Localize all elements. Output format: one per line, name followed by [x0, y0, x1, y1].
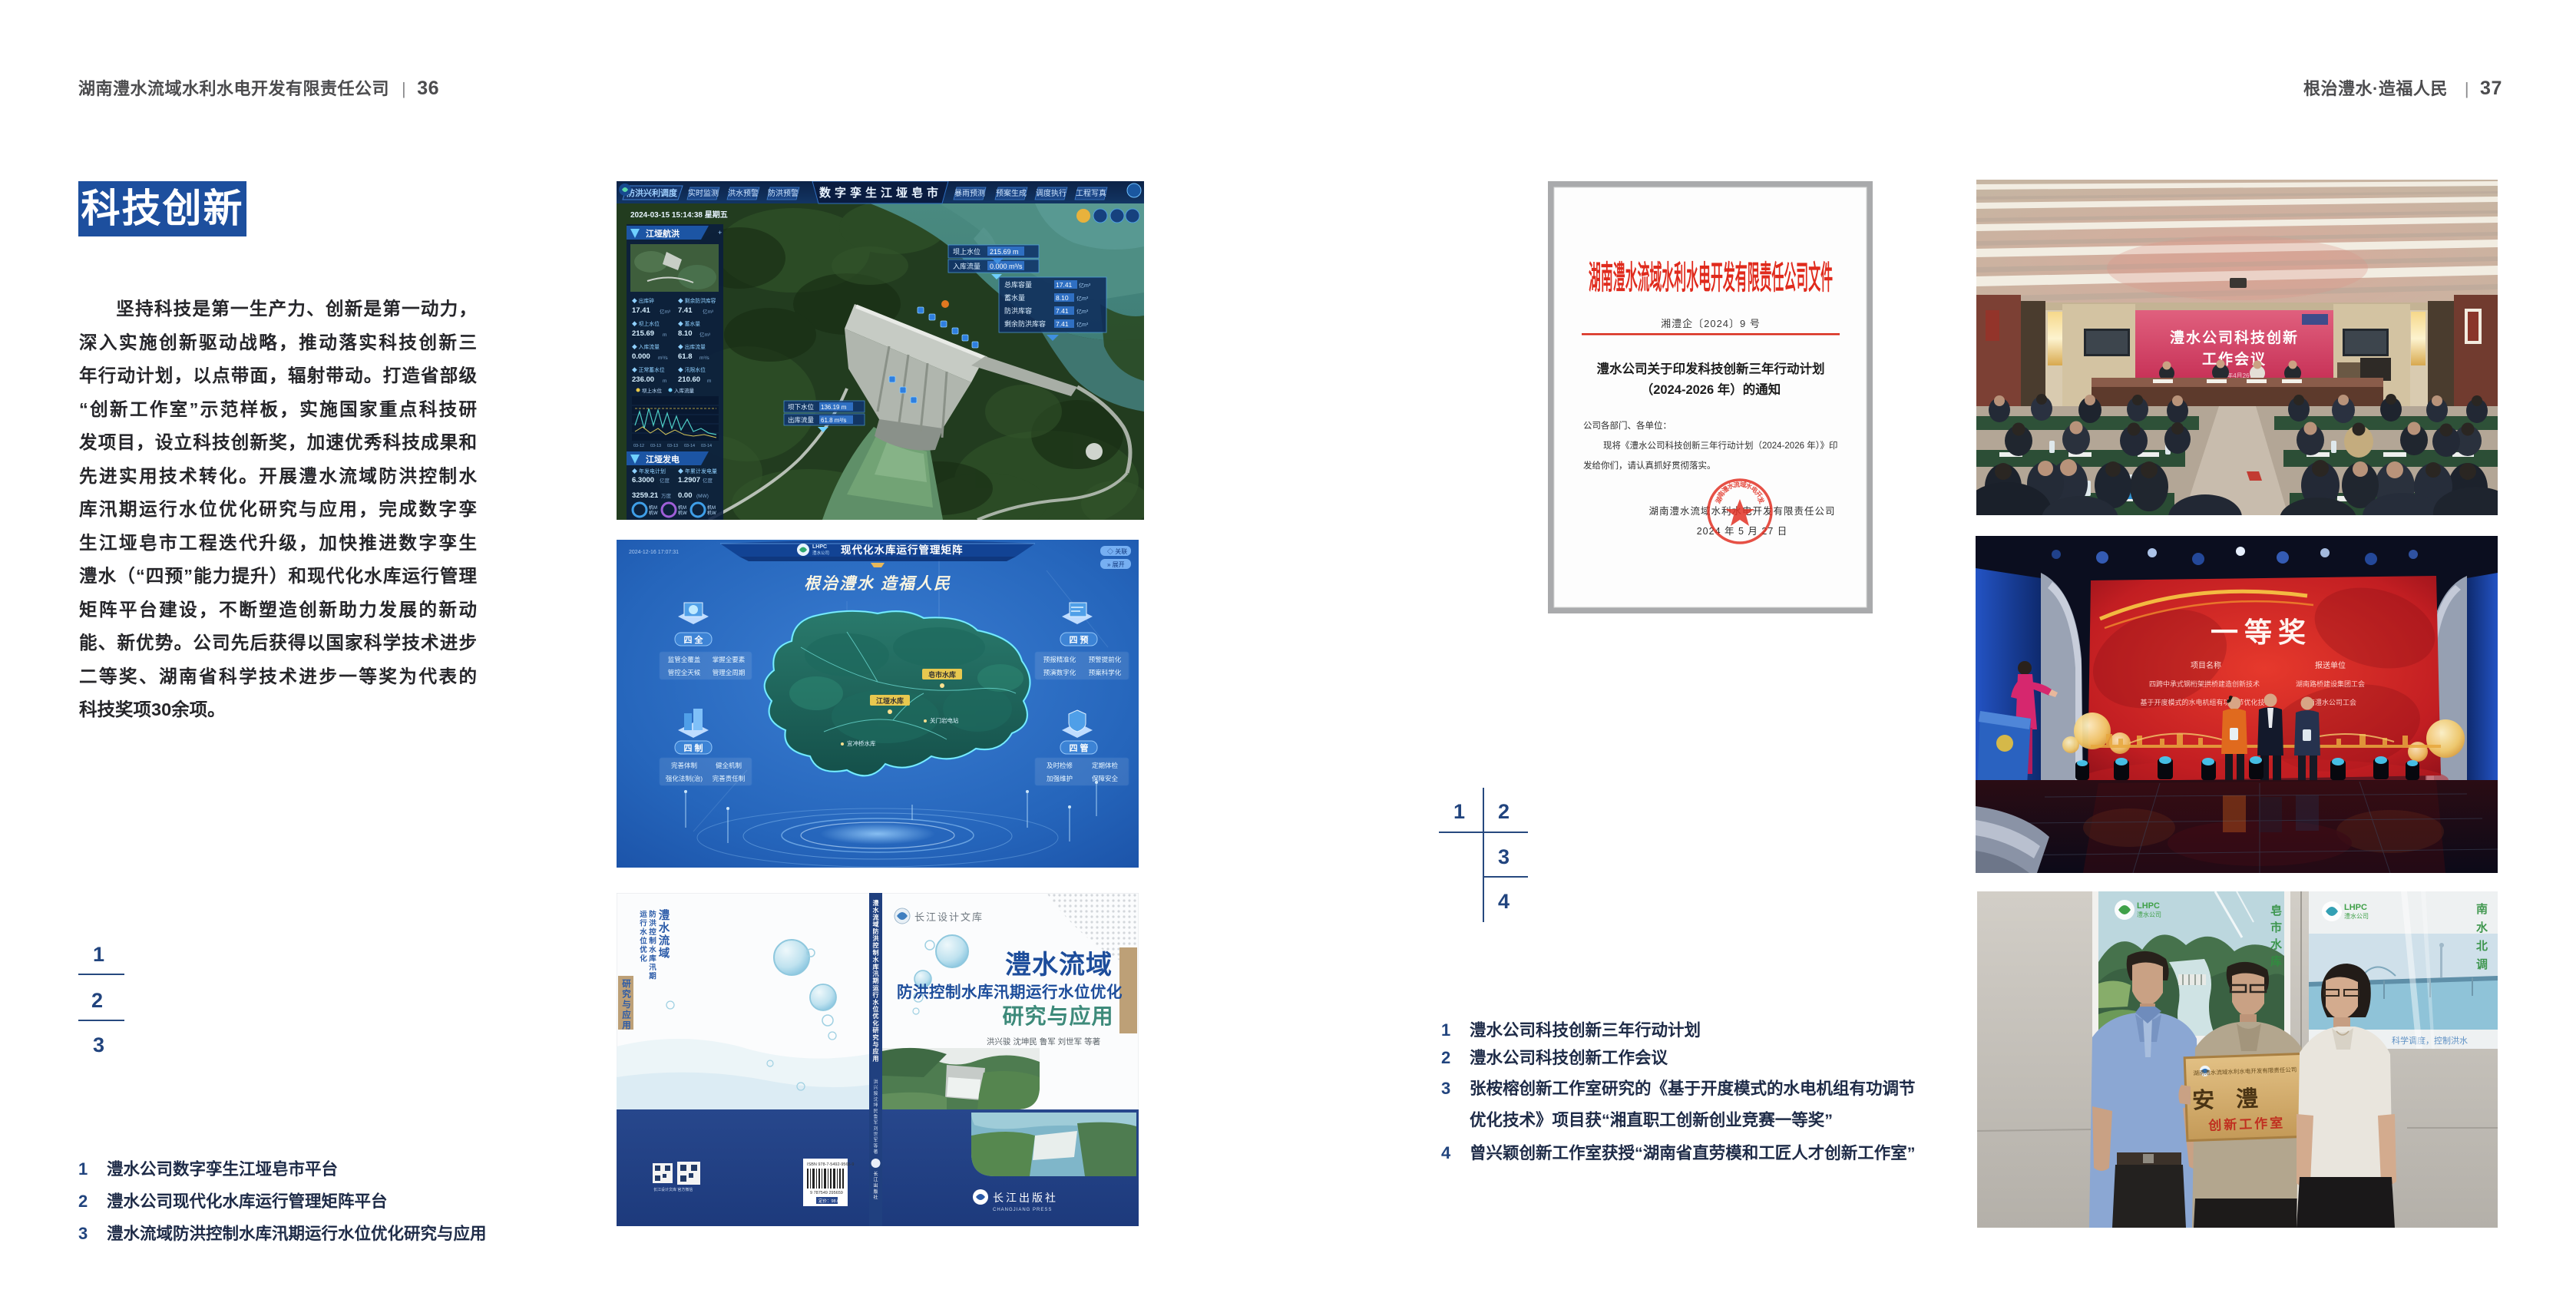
svg-text:亿度: 亿度 [703, 477, 713, 484]
svg-text:长江出版社: 长江出版社 [873, 1171, 878, 1200]
svg-text:LHPC: LHPC [2344, 903, 2367, 912]
svg-text:澧水公司: 澧水公司 [2344, 912, 2369, 920]
svg-text:亿m³: 亿m³ [1076, 308, 1089, 315]
svg-text:江垭发电: 江垭发电 [646, 454, 680, 465]
svg-text:管理全周期: 管理全周期 [713, 669, 746, 676]
svg-text:机W: 机W [649, 510, 658, 516]
svg-text:安澧: 安澧 [2192, 1085, 2280, 1113]
svg-text:现代化水库运行管理矩阵: 现代化水库运行管理矩阵 [841, 544, 964, 556]
svg-text:强化法制(治): 强化法制(治) [666, 775, 703, 782]
svg-text:报送单位: 报送单位 [2315, 660, 2346, 670]
svg-text:江垭航洪: 江垭航洪 [646, 228, 680, 239]
svg-text:ISBN 978-7-5492-9565-9: ISBN 978-7-5492-9565-9 [807, 1162, 854, 1167]
svg-text:LHPC: LHPC [812, 544, 827, 550]
svg-text:◆ 入库流量: ◆ 入库流量 [632, 343, 660, 350]
svg-text:长江设计文库: 长江设计文库 [914, 911, 984, 923]
svg-text:湘澧企〔2024〕9 号: 湘澧企〔2024〕9 号 [1661, 318, 1761, 329]
svg-text:0.00: 0.00 [678, 491, 693, 500]
svg-text:2024 年 5 月 27 日: 2024 年 5 月 27 日 [1697, 526, 1788, 537]
svg-text:公司各部门、各单位：: 公司各部门、各单位： [1583, 420, 1672, 431]
svg-text:澧水公司科技创新: 澧水公司科技创新 [2170, 329, 2299, 346]
svg-text:136.19 m: 136.19 m [821, 404, 847, 411]
svg-text:◆ 剩余防洪库容: ◆ 剩余防洪库容 [678, 297, 716, 304]
svg-text:亿度: 亿度 [660, 477, 670, 484]
svg-text:61.8: 61.8 [678, 352, 693, 361]
svg-text:项目名称: 项目名称 [2191, 660, 2221, 670]
svg-text:完善体制: 完善体制 [671, 762, 697, 769]
svg-text:完善责任制: 完善责任制 [713, 775, 746, 782]
svg-text:湖南澧水流域水利水电开发有限责任公司文件: 湖南澧水流域水利水电开发有限责任公司文件 [1589, 260, 1833, 296]
svg-text:运行水位优化: 运行水位优化 [639, 911, 647, 964]
svg-text:四 制: 四 制 [683, 742, 703, 753]
svg-text:17.41: 17.41 [632, 306, 650, 315]
svg-text:亿m³: 亿m³ [1076, 321, 1089, 328]
svg-text:◆ 蓄水量: ◆ 蓄水量 [678, 320, 700, 327]
svg-text:基于开度模式的水电机组有功调节优化技术: 基于开度模式的水电机组有功调节优化技术 [2140, 698, 2271, 706]
svg-text:洪兴骏 沈坤民 鲁军 刘世军 等著: 洪兴骏 沈坤民 鲁军 刘世军 等著 [987, 1037, 1100, 1046]
svg-text:防洪兴利调度: 防洪兴利调度 [627, 187, 678, 198]
svg-text:◆ 出库流量: ◆ 出库流量 [678, 343, 706, 350]
svg-text:机W: 机W [707, 510, 716, 516]
svg-text:江垭水库: 江垭水库 [876, 696, 904, 705]
svg-text:总库容量: 总库容量 [1004, 280, 1032, 289]
svg-text:◆ 年发电计划: ◆ 年发电计划 [632, 468, 666, 474]
svg-text:◆ 汛限水位: ◆ 汛限水位 [678, 366, 706, 373]
svg-text:根治澧水 造福人民: 根治澧水 造福人民 [804, 574, 951, 593]
svg-text:3259.21: 3259.21 [632, 491, 659, 500]
svg-text:健全机制: 健全机制 [716, 762, 742, 769]
svg-text:◆ 坝上水位: ◆ 坝上水位 [632, 320, 660, 327]
svg-text:加强维护: 加强维护 [1047, 775, 1073, 782]
svg-text:215.69: 215.69 [632, 329, 654, 338]
svg-text:m³/s: m³/s [699, 355, 709, 361]
svg-text:出库流量: 出库流量 [788, 416, 815, 424]
svg-text:澧水流域: 澧水流域 [1005, 951, 1113, 980]
svg-text:研究与应用: 研究与应用 [621, 979, 631, 1030]
svg-text:17.41: 17.41 [1056, 281, 1073, 289]
svg-text:防洪库容: 防洪库容 [1004, 306, 1032, 315]
svg-text:蓄水量: 蓄水量 [1004, 293, 1025, 302]
svg-text:m: m [707, 379, 711, 384]
svg-text:m³/s: m³/s [658, 355, 668, 361]
svg-text:预演数字化: 预演数字化 [1043, 669, 1076, 676]
svg-text:工程写真: 工程写真 [1076, 188, 1106, 198]
svg-text:一等奖: 一等奖 [2211, 617, 2312, 648]
svg-text:◇ 关联: ◇ 关联 [1107, 547, 1127, 555]
svg-text:定价：98.00元: 定价：98.00元 [818, 1198, 846, 1204]
svg-text:暴雨预测: 暴雨预测 [954, 188, 985, 198]
svg-text:长江出版社: 长江出版社 [993, 1192, 1058, 1204]
svg-text:预案生成: 预案生成 [996, 188, 1027, 198]
svg-text:0.000: 0.000 [632, 352, 650, 361]
svg-text:机M: 机M [649, 504, 657, 511]
svg-text:数字孪生江垭皂市: 数字孪生江垭皂市 [819, 186, 942, 200]
svg-text:四 预: 四 预 [1069, 634, 1088, 645]
svg-text:机W: 机W [678, 510, 687, 516]
svg-text:长江设计文库 官方微信: 长江设计文库 官方微信 [653, 1187, 693, 1192]
svg-text:LHPC: LHPC [2137, 901, 2160, 911]
svg-text:发给你们，请认真抓好贯彻落实。: 发给你们，请认真抓好贯彻落实。 [1583, 460, 1716, 471]
svg-text:四 管: 四 管 [1069, 742, 1088, 753]
svg-text:实时监测: 实时监测 [688, 188, 719, 198]
svg-text:210.60: 210.60 [678, 375, 700, 384]
svg-text:亿m³: 亿m³ [703, 308, 714, 315]
svg-text:m: m [663, 332, 666, 338]
svg-text:0.000 m³/s: 0.000 m³/s [990, 263, 1023, 270]
svg-text:及时检修: 及时检修 [1047, 762, 1073, 769]
svg-text:亿m³: 亿m³ [699, 331, 711, 338]
svg-text:皂市水库: 皂市水库 [928, 670, 956, 679]
svg-text:湖南路桥建设集团工会: 湖南路桥建设集团工会 [2296, 679, 2365, 688]
svg-text:预报精准化: 预报精准化 [1043, 656, 1076, 663]
svg-text:创新工作室: 创新工作室 [2207, 1115, 2286, 1133]
svg-text:澧水公司: 澧水公司 [2137, 911, 2161, 918]
svg-text:03-14: 03-14 [684, 444, 695, 448]
svg-text:研究与应用: 研究与应用 [1002, 1003, 1113, 1028]
svg-text:监管全覆盖: 监管全覆盖 [668, 656, 701, 663]
svg-text:坝上水位: 坝上水位 [953, 247, 980, 256]
svg-text:防洪控制水库汛期: 防洪控制水库汛期 [648, 910, 656, 981]
svg-text:防洪控制水库汛期运行水位优化: 防洪控制水库汛期运行水位优化 [897, 983, 1123, 1001]
svg-text:宜冲桥水库: 宜冲桥水库 [847, 739, 876, 747]
svg-text:入库流量: 入库流量 [953, 262, 980, 270]
svg-text:2024-03-15 15:14:38 星期五: 2024-03-15 15:14:38 星期五 [630, 210, 728, 220]
svg-text:7.41: 7.41 [1056, 307, 1069, 315]
svg-text:亿m³: 亿m³ [1079, 282, 1091, 289]
svg-text:215.69 m: 215.69 m [990, 248, 1019, 256]
svg-text:+: + [718, 229, 722, 236]
svg-text:澧水公司关于印发科技创新三年行动计划: 澧水公司关于印发科技创新三年行动计划 [1597, 361, 1825, 376]
svg-text:◆ 正常蓄水位: ◆ 正常蓄水位 [632, 366, 665, 373]
svg-text:坝下水位: 坝下水位 [788, 403, 815, 411]
svg-text:定期体检: 定期体检 [1092, 762, 1119, 769]
svg-text:03-14: 03-14 [701, 444, 712, 448]
svg-text:澧水流域防洪控制水库汛期运行水位优化研究与应用: 澧水流域防洪控制水库汛期运行水位优化研究与应用 [872, 899, 880, 1062]
svg-text:03-12: 03-12 [633, 444, 644, 448]
svg-text:6.3000: 6.3000 [632, 476, 654, 484]
svg-text:◆ 出库碎: ◆ 出库碎 [632, 297, 654, 304]
svg-text:机M: 机M [678, 504, 686, 511]
svg-text:03-13: 03-13 [667, 444, 678, 448]
svg-text:7.41: 7.41 [1056, 320, 1069, 328]
svg-text:m: m [663, 379, 666, 384]
svg-text:四 全: 四 全 [683, 634, 703, 645]
svg-text:8.10: 8.10 [678, 329, 693, 338]
svg-text:剩余防洪库容: 剩余防洪库容 [1004, 319, 1046, 328]
svg-text:澧水公司: 澧水公司 [812, 550, 829, 556]
svg-text:（2024-2026 年）的通知: （2024-2026 年）的通知 [1641, 382, 1781, 397]
svg-text:8.10: 8.10 [1056, 294, 1069, 302]
svg-text:236.00: 236.00 [632, 375, 654, 384]
svg-text:◆ 年累计发电量: ◆ 年累计发电量 [678, 468, 717, 474]
svg-text:管控全天候: 管控全天候 [668, 669, 701, 676]
svg-text:调度执行: 调度执行 [1036, 188, 1066, 198]
svg-text:机M: 机M [707, 504, 716, 511]
svg-text:» 展开: » 展开 [1107, 561, 1125, 568]
svg-text:CHANGJIANG PRESS: CHANGJIANG PRESS [993, 1208, 1052, 1212]
svg-text:防洪预警: 防洪预警 [768, 188, 799, 198]
svg-text:澧水流域: 澧水流域 [659, 908, 670, 960]
svg-text:万度: 万度 [661, 492, 672, 499]
svg-text:坝上水位: 坝上水位 [642, 387, 663, 394]
svg-text:四跨中承式钢桁架拱桥建造创新技术: 四跨中承式钢桁架拱桥建造创新技术 [2149, 679, 2260, 688]
svg-text:亿m³: 亿m³ [1076, 295, 1089, 302]
svg-text:科学调度，控制洪水: 科学调度，控制洪水 [2392, 1035, 2468, 1046]
svg-text:61.8 m³/s: 61.8 m³/s [821, 417, 846, 424]
svg-text:9 787549 295659: 9 787549 295659 [810, 1191, 843, 1195]
svg-text:掌握全要素: 掌握全要素 [713, 656, 746, 663]
svg-text:1.2907: 1.2907 [678, 476, 700, 484]
svg-text:入库流量: 入库流量 [674, 387, 695, 394]
svg-text:预案科学化: 预案科学化 [1089, 669, 1122, 676]
svg-text:现将《澧水公司科技创新三年行动计划（2024-2026 年）: 现将《澧水公司科技创新三年行动计划（2024-2026 年）》印 [1603, 440, 1837, 451]
svg-text:洪水预警: 洪水预警 [728, 188, 759, 198]
svg-text:亿m³: 亿m³ [660, 308, 671, 315]
svg-text:关门岩电站: 关门岩电站 [930, 716, 959, 724]
svg-text:03-13: 03-13 [650, 444, 661, 448]
svg-text:预警提前化: 预警提前化 [1089, 656, 1122, 663]
svg-text:7.41: 7.41 [678, 306, 693, 315]
svg-text:(MW): (MW) [696, 494, 709, 499]
svg-text:2024-12-16 17:07:31: 2024-12-16 17:07:31 [629, 550, 679, 555]
